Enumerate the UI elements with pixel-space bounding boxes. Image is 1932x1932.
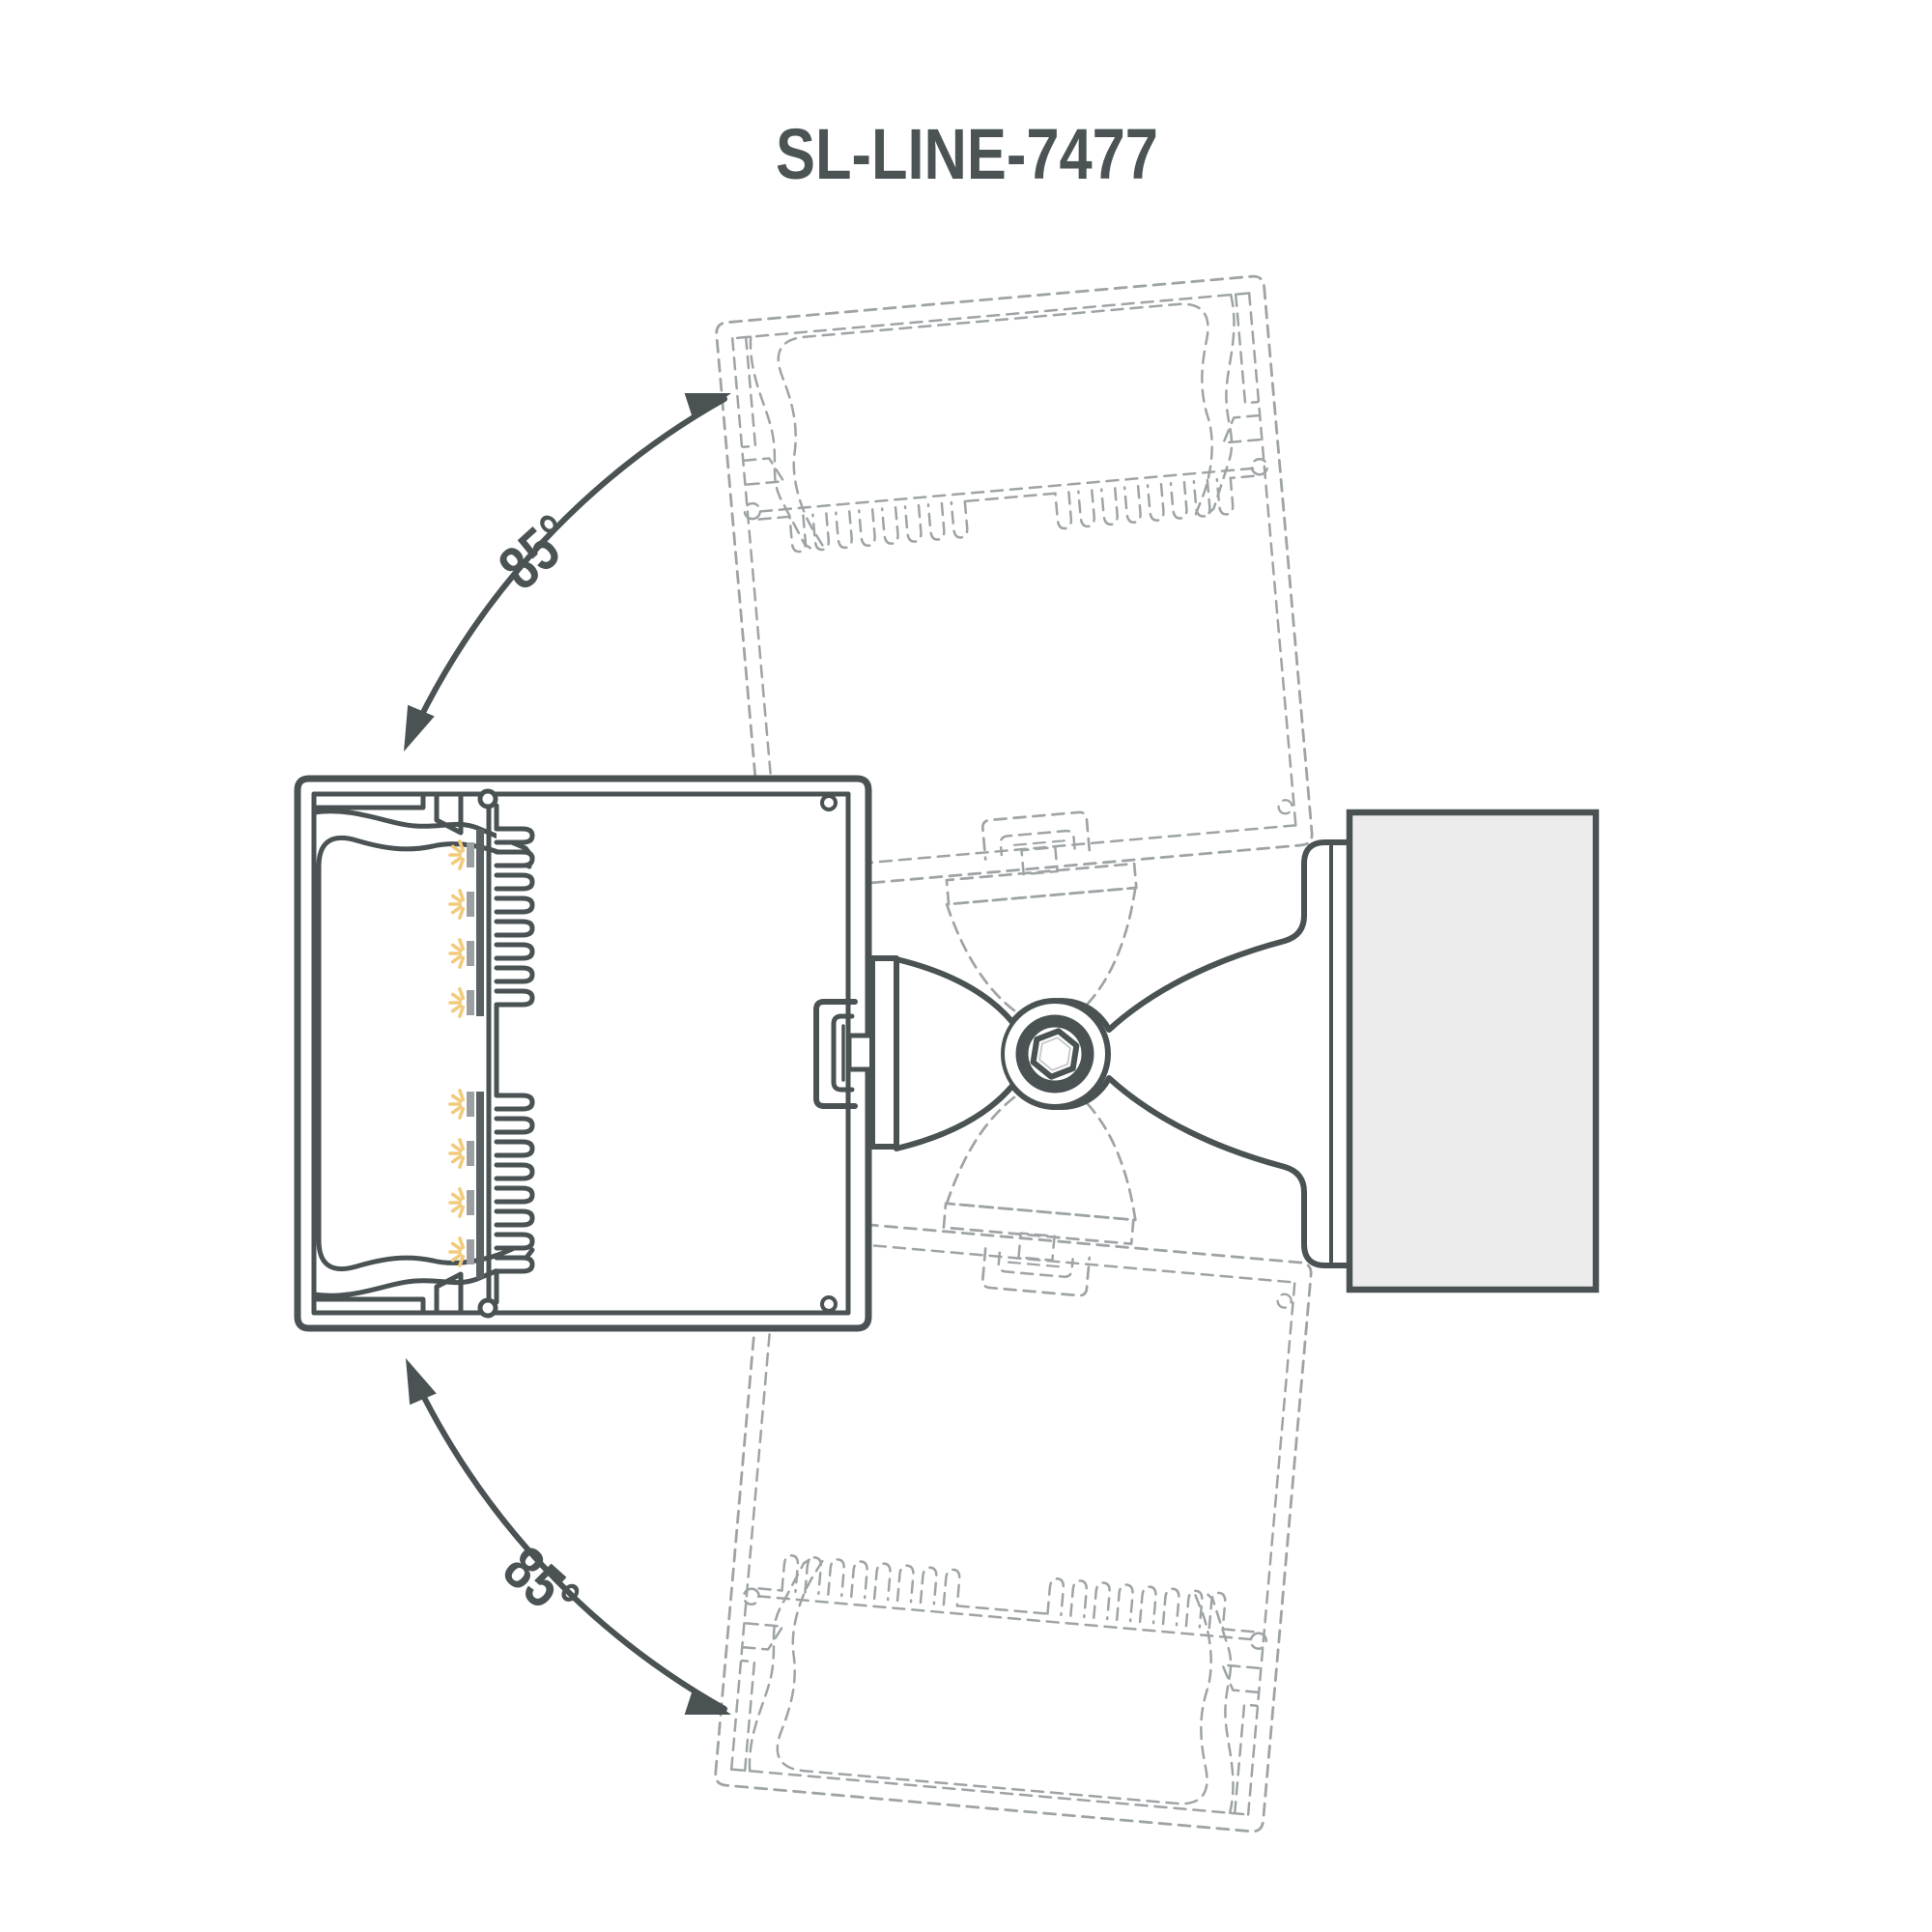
diagram: 85° 85° SL-LINE-7477 <box>0 0 1932 1932</box>
led-board-lower <box>476 1092 484 1279</box>
fixture-cross-section <box>298 779 868 1328</box>
wall-fill <box>1350 812 1596 1290</box>
wall-section <box>1350 812 1596 1290</box>
page-title: SL-LINE-7477 <box>776 115 1158 195</box>
pivot-joint <box>1003 1002 1107 1106</box>
canvas-background <box>0 0 1932 1932</box>
led-board-upper <box>476 829 484 1016</box>
